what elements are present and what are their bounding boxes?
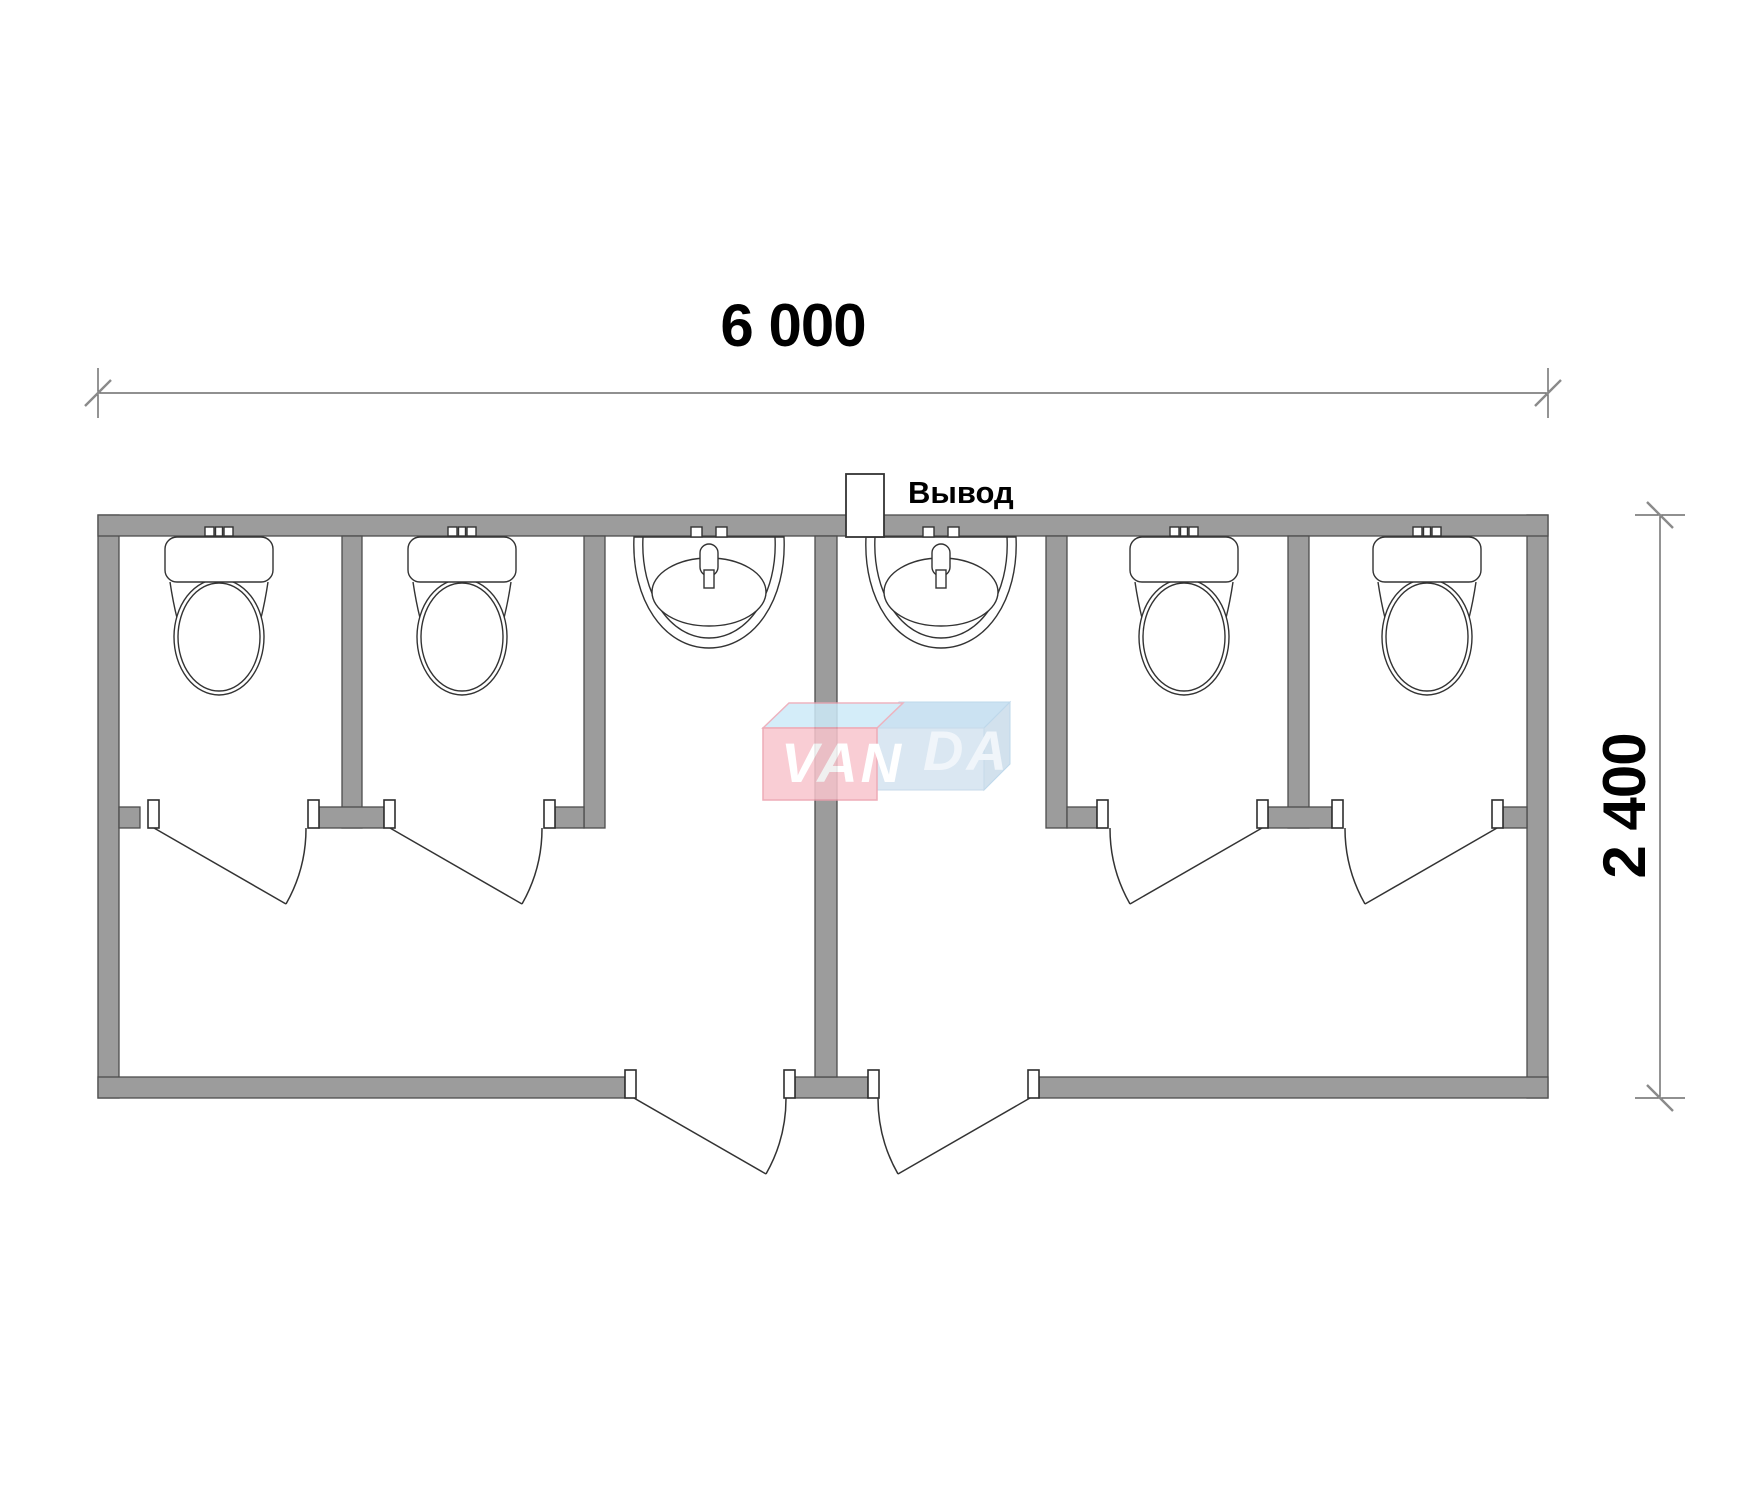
stall-front-stub-1 (119, 807, 140, 828)
floor-plan-page: Вывод VAN DA 6 000 2 400 (0, 0, 1763, 1503)
watermark-text-van: VAN (781, 731, 904, 794)
exterior-wall-bottom-right (1039, 1077, 1548, 1098)
toilet-2 (408, 527, 516, 695)
toilet-3 (1130, 527, 1238, 695)
stall-door-4 (1345, 828, 1497, 904)
floor-plan-drawing: Вывод VAN DA 6 000 2 400 (0, 0, 1763, 1503)
jamb (1097, 800, 1108, 828)
stall-door-2 (390, 828, 542, 904)
exterior-wall-bottom-center (795, 1077, 868, 1098)
jamb (308, 800, 319, 828)
sink-1 (634, 527, 784, 648)
jamb (1332, 800, 1343, 828)
partition-stall2-washroom1 (584, 536, 605, 828)
dimension-height: 2 400 (1591, 502, 1685, 1111)
jamb (384, 800, 395, 828)
exterior-wall-top (98, 515, 1548, 536)
toilet-4 (1373, 527, 1481, 695)
exterior-wall-left (98, 515, 119, 1098)
jamb (1257, 800, 1268, 828)
stall-front-stub-5 (1268, 807, 1332, 828)
vanda-watermark: VAN DA (763, 702, 1010, 800)
sink-2 (866, 527, 1016, 648)
jamb (1028, 1070, 1039, 1098)
stall-front-stub-6 (1503, 807, 1527, 828)
partition-washroom2-stall3 (1046, 536, 1067, 828)
stall-door-1 (154, 828, 306, 904)
dimension-width: 6 000 (85, 292, 1561, 418)
stall-door-3 (1110, 828, 1262, 904)
entry-door-right (878, 1098, 1030, 1174)
height-dimension-label: 2 400 (1591, 733, 1658, 878)
watermark-text-da: DA (923, 719, 1010, 782)
width-dimension-label: 6 000 (720, 292, 865, 359)
partition-center (815, 536, 837, 1077)
jamb (1492, 800, 1503, 828)
stall-front-stub-4 (1067, 807, 1097, 828)
outlet-box (846, 474, 884, 537)
stall-front-stub-3 (555, 807, 584, 828)
jamb (868, 1070, 879, 1098)
jamb (544, 800, 555, 828)
jamb (625, 1070, 636, 1098)
exterior-wall-bottom-left (98, 1077, 625, 1098)
exterior-wall-right (1527, 515, 1548, 1098)
partition-stall1-stall2 (342, 536, 362, 828)
partition-stall3-stall4 (1288, 536, 1309, 828)
jamb (784, 1070, 795, 1098)
entry-door-left (634, 1098, 786, 1174)
toilet-1 (165, 527, 273, 695)
stall-front-stub-2 (319, 807, 384, 828)
jamb (148, 800, 159, 828)
outlet-label: Вывод (908, 475, 1014, 510)
